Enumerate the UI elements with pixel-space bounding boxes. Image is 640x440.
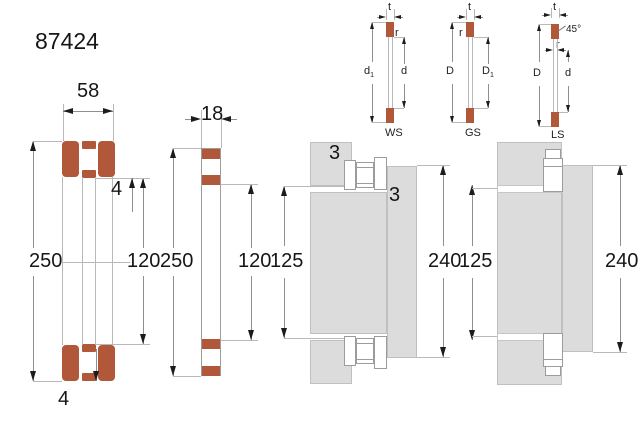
dim-label-fillet: 3 [389,185,400,205]
dim-label-lip-top: 4 [111,179,122,199]
dim-arrow [103,108,113,114]
dim-label-housing-shoulder: 240 [605,251,638,271]
dim-arrow [474,15,481,19]
chamfer-leader-line [559,26,566,31]
bearing-washer-bottom-left [62,345,79,381]
dim-arrow [450,22,454,29]
cage-line [544,359,562,360]
dim-line [620,165,621,246]
dim-label-D1: D1 [482,66,494,79]
cage-line [357,359,373,360]
dim-arrow [544,13,551,17]
ls-washer-section [551,112,559,127]
extension-line [593,352,627,353]
extension-line [173,148,201,149]
washer-lip [545,149,561,159]
dim-label-d: d [401,66,407,77]
dim-arrow [440,347,446,357]
mounted-washer [374,336,387,369]
extension-line [33,381,62,382]
dim-arrow [459,15,466,19]
ws-washer-section [386,108,394,123]
dim-arrow [129,178,135,188]
extension-line [33,141,62,142]
surface-line [553,39,554,113]
surface-line [468,37,469,108]
surface-line [112,177,113,345]
extension-line [417,357,450,358]
bearing-washer-top-right [98,141,115,177]
dim-line [143,178,144,248]
dim-label-D: D [533,68,541,79]
dim-arrow [557,48,564,52]
surface-line [392,37,393,108]
dim-arrow [546,48,553,52]
dim-arrow [140,178,146,188]
dim-arrow [93,371,99,381]
dim-label-t: t [388,2,391,13]
washer-strip [202,339,220,349]
dim-arrow [469,330,475,340]
extension-line [452,22,466,23]
ls-washer-section [551,24,559,39]
roller-strip [82,344,96,352]
dim-line [173,148,174,248]
extension-line [394,37,404,38]
dim-arrow [617,165,623,175]
dim-label-d1: d1 [364,66,374,79]
mounted-bearing [543,158,563,192]
mounted-washer [344,336,356,366]
dim-label-fillet: 3 [329,143,340,163]
dim-arrow [191,116,201,122]
extension-line [466,9,467,20]
extension-line [372,122,386,123]
gs-washer-section [466,22,474,37]
technical-drawing-page: 87424 58 250 120 4 4 18 [0,0,640,440]
mounted-rollers [356,338,374,364]
dim-arrow [440,165,446,175]
extension-line [472,336,497,337]
extension-line [539,24,551,25]
washer-strip [202,175,220,185]
dim-arrow [370,22,374,29]
dim-arrow [537,24,541,31]
surface-line [557,39,558,113]
dim-label-d: d [565,68,571,79]
extension-line [394,108,404,109]
dim-arrow [402,37,406,44]
dim-label-r: r [459,28,463,39]
housing-block-right [562,165,593,352]
dim-line [443,278,444,357]
dim-arrow [63,108,73,114]
mounted-washer [374,157,387,190]
cage-line [357,167,373,168]
washer-strip [202,366,220,376]
dim-arrow [170,366,176,376]
cage-line [357,343,373,344]
bearing-washer-bottom-right [98,345,115,381]
extension-line [96,344,150,345]
center-line [62,262,130,263]
part-number-title: 87424 [35,30,99,53]
cage-line [544,166,562,167]
extension-line [539,126,551,127]
dim-label-bore: 120 [127,251,160,271]
extension-line [474,37,488,38]
washer-lip [545,366,561,376]
shaft-block [310,192,387,334]
dim-label-D: D [446,66,454,77]
extension-line [559,112,568,113]
dim-arrow [30,371,36,381]
surface-line [472,37,473,108]
extension-line [593,165,627,166]
extension-line [386,9,387,20]
gs-caption: GS [465,128,481,139]
dim-arrow [281,328,287,338]
dim-line [33,141,34,248]
mounted-washer [344,160,356,190]
dim-label-t: t [468,2,471,13]
mounted-bearing [543,333,563,367]
dim-arrow [486,101,490,108]
ls-caption: LS [551,130,564,141]
washer-strip [202,149,220,159]
dim-label-width: 58 [77,81,99,101]
dim-arrow [469,185,475,195]
dim-arrow [281,186,287,196]
dim-label-lip-bottom: 4 [58,389,69,409]
dim-arrow [140,334,146,344]
surface-line [95,177,96,345]
dim-arrow [486,37,490,44]
dim-label-od: 250 [29,251,62,271]
extension-line [417,165,450,166]
extension-line [452,122,466,123]
extension-line [551,8,552,18]
extension-line [372,22,386,23]
extension-line [221,184,258,185]
dim-arrow [566,50,570,57]
dim-arrow [248,330,254,340]
dim-arrow [559,13,566,17]
dim-arrow [379,15,386,19]
surface-line [82,177,83,345]
dim-arrow [30,141,36,151]
extension-line [173,376,201,377]
gs-washer-section [466,108,474,123]
bearing-washer-top-left [62,141,79,177]
extension-line [221,340,258,341]
cage-line [357,183,373,184]
dim-line [173,276,174,376]
ws-washer-section [386,22,394,37]
dim-label-width: 18 [201,104,223,124]
dim-arrow [617,342,623,352]
dim-arrow [394,15,401,19]
dim-label-shaft-shoulder: 125 [459,251,492,271]
dim-label-housing-shoulder: 240 [428,251,461,271]
ws-caption: WS [385,128,403,139]
extension-line [284,186,344,187]
dim-arrow [566,105,570,112]
surface-line [388,37,389,108]
extension-line [96,178,150,179]
dim-label-od: 250 [160,251,193,271]
extension-line [472,188,497,189]
extension-line [474,108,488,109]
dim-line [620,278,621,352]
extension-line [113,104,114,141]
roller-strip [82,141,96,149]
dim-label-bore: 120 [238,251,271,271]
dim-label-shaft-shoulder: 125 [270,251,303,271]
extension-line [284,338,344,339]
dim-line [443,165,444,246]
dim-arrow [248,184,254,194]
dim-line [33,276,34,381]
dim-label-chamfer: 45° [566,25,581,35]
dim-arrow [402,101,406,108]
dim-label-t: t [553,2,556,13]
mounted-rollers [356,162,374,188]
dim-arrow [170,148,176,158]
roller-strip [82,170,96,178]
